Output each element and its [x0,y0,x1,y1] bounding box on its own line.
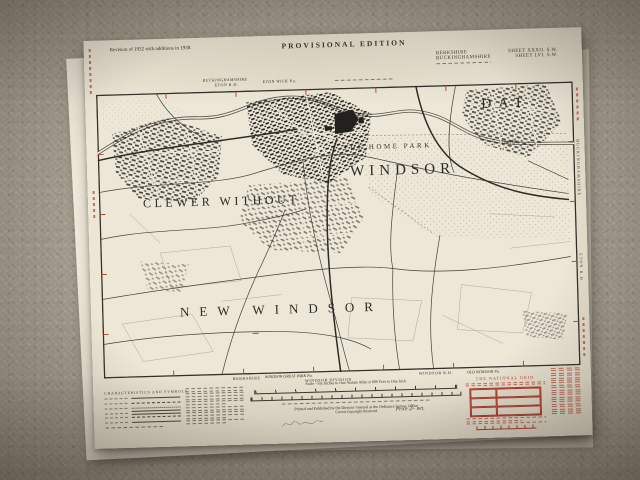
photo-scene: Revision of 1932 with additions in 1938.… [0,0,640,480]
grid-reference-ladder [551,367,582,414]
microtext-line [436,62,491,65]
sheet-number: SHEET LVI. S.W. [515,53,558,59]
label-datchet-small: Datchet [500,139,519,146]
price-label: Price 2/- net. [396,406,425,413]
national-grid-ruler [476,425,536,431]
revision-note: Revision of 1932 with additions in 1938. [110,46,192,54]
legend-block: CHARACTERISTICS AND SYMBOLS [104,389,181,430]
microtext-line [335,78,395,81]
right-margin-district: ETON R.D. [579,253,585,283]
label-datchet-large: DAT [481,96,530,112]
label-windsor: WINDSOR [350,161,455,180]
county-sheet-block: BERKSHIRE SHEET XXXII. S.W. BUCKINGHAMSH… [436,48,558,66]
microtext-line [105,426,163,429]
scale-block: Scale - Six Inches to One Statute Mile o… [248,377,464,416]
left-margin-red-marks [89,49,92,95]
right-margin-red-marks [582,317,585,357]
legend-title: CHARACTERISTICS AND SYMBOLS [104,389,180,395]
legend-row [105,419,181,425]
county-name: BUCKINGHAMSHIRE [436,55,491,62]
top-margin-district: ETON R.D. [215,83,239,88]
edition-title: PROVISIONAL EDITION [281,38,406,50]
right-margin-county: BUCKINGHAMSHIRE [575,139,582,196]
top-margin-parish: ETON WICK Pa. [263,79,297,84]
bottom-parish-right: OLD WINDSOR Pa. [467,370,500,375]
bottom-county: BERKSHIRE [233,376,261,381]
bottom-district: WINDSOR R.D. [419,371,454,376]
national-grid-box: THE NATIONAL GRID [465,374,546,430]
left-margin-red-marks [93,191,96,221]
map-face: DAT Datchet THE HOME PARK WINDSOR CLEWER… [96,81,581,378]
notes-block [185,387,246,426]
handwritten-annotation [280,414,324,431]
map-sheet: Revision of 1932 with additions in 1938.… [83,27,592,449]
right-margin-red-marks [576,87,579,121]
national-grid-table [469,386,542,417]
